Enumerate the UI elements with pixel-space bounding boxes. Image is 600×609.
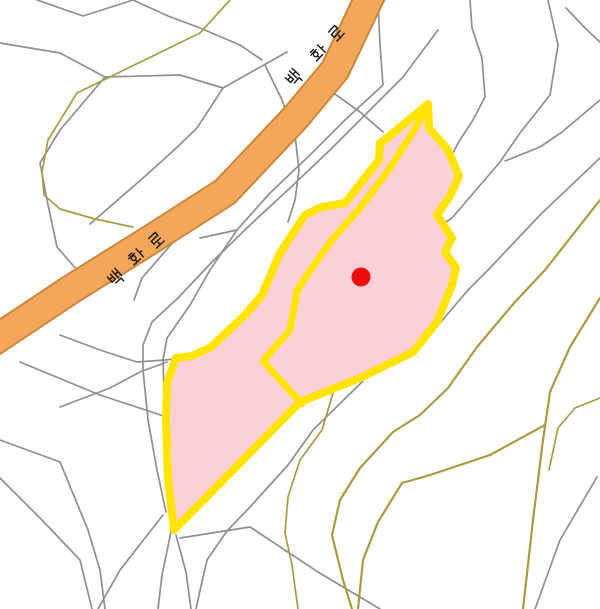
map-canvas [0, 0, 600, 609]
location-marker-dot [352, 268, 371, 287]
map-viewport[interactable]: 백화로 백화로 [0, 0, 600, 609]
highlighted-parcel[interactable] [166, 104, 459, 530]
parcel-outline [166, 104, 459, 530]
